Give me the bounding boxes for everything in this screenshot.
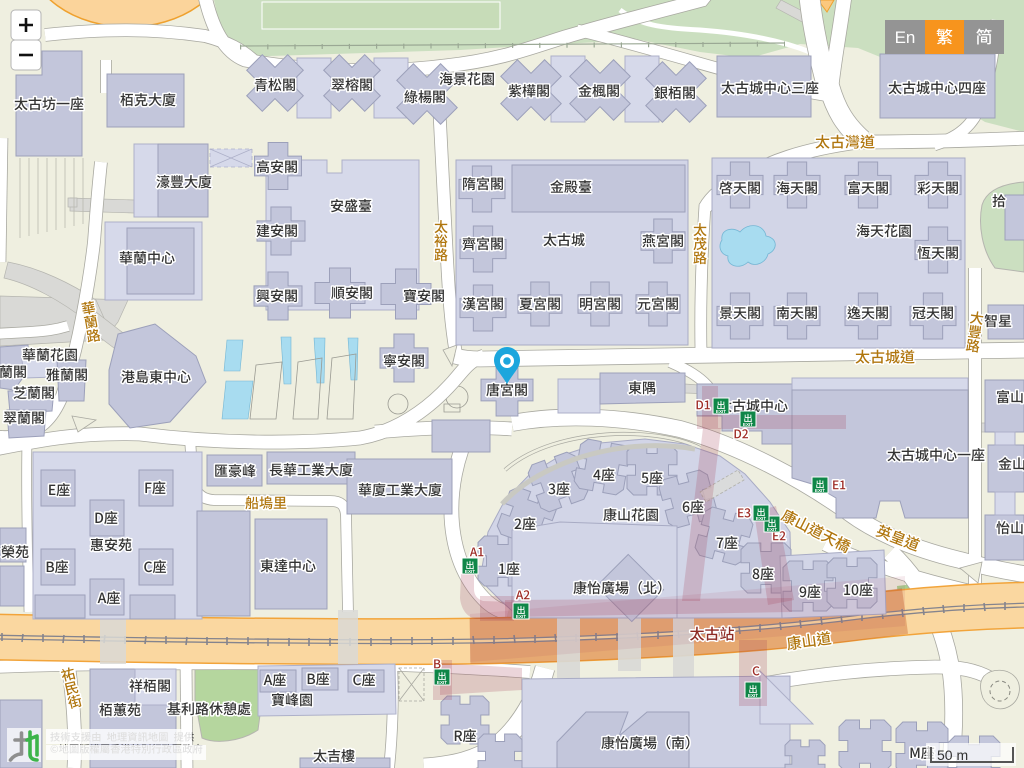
svg-text:50 m: 50 m <box>937 747 968 763</box>
svg-text:EXIT: EXIT <box>767 527 777 532</box>
svg-text:EXIT: EXIT <box>743 422 753 427</box>
svg-text:EXIT: EXIT <box>815 488 825 493</box>
svg-text:EXIT: EXIT <box>748 693 758 698</box>
svg-text:En: En <box>895 28 916 47</box>
svg-text:EXIT: EXIT <box>516 614 526 619</box>
svg-text:EXIT: EXIT <box>716 409 726 414</box>
svg-text:EXIT: EXIT <box>437 680 447 685</box>
svg-text:EXIT: EXIT <box>756 516 766 521</box>
svg-text:EXIT: EXIT <box>465 569 475 574</box>
